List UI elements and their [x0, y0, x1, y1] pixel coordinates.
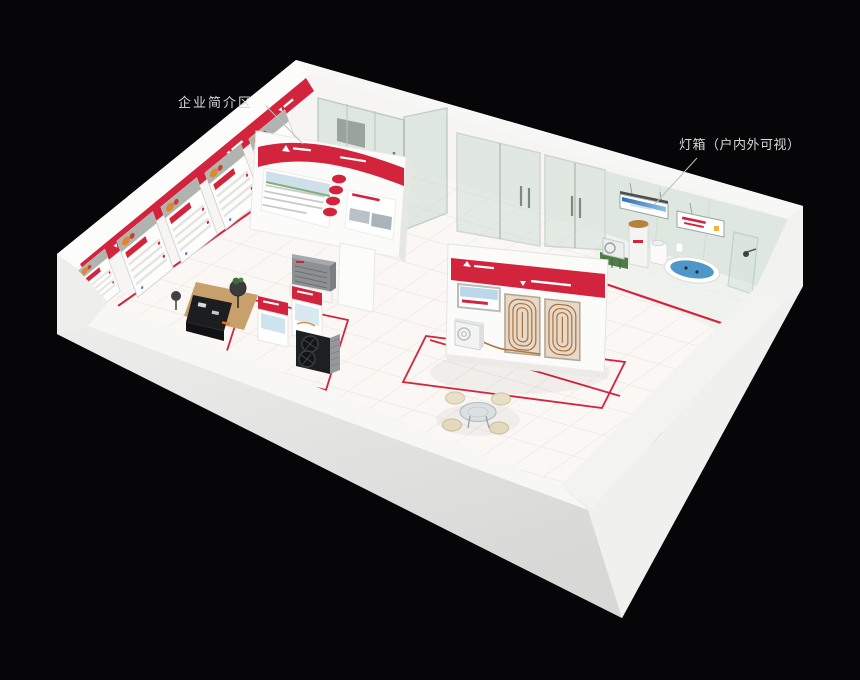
island-lightbox — [458, 284, 500, 311]
bath-accessory — [695, 270, 698, 273]
sink-basin — [652, 240, 664, 245]
bath-accessory — [684, 266, 687, 269]
heatpump-unit-side — [330, 262, 336, 292]
water-tank-lid — [629, 220, 649, 228]
towel — [676, 243, 683, 252]
showroom-3d-render: 企业简介区 灯箱（户内外可视） — [0, 0, 860, 680]
plant — [233, 278, 240, 285]
tank-label — [633, 240, 643, 243]
coil-panel-right — [545, 299, 580, 361]
chair — [490, 422, 509, 434]
plant — [239, 278, 244, 283]
chair — [446, 392, 465, 404]
glass-table-top — [460, 403, 496, 422]
glass-door-set-a — [457, 133, 540, 246]
coil-panel-left — [505, 294, 540, 356]
annotation-light-box-label: 灯箱（户内外可视） — [679, 134, 801, 153]
lightbox-logo — [714, 226, 719, 231]
shower-head — [743, 251, 749, 257]
annotation-company-intro-label: 企业简介区 — [178, 92, 253, 111]
chair — [443, 419, 462, 431]
bar-stool — [171, 291, 181, 301]
chair — [492, 393, 511, 405]
outdoor-unit-side — [480, 323, 484, 350]
unit-backdrop-panel — [338, 243, 375, 312]
room-scene — [0, 0, 860, 680]
water-tank — [629, 222, 648, 268]
shower-glass — [728, 232, 758, 294]
unit-logo-dash — [296, 261, 304, 263]
